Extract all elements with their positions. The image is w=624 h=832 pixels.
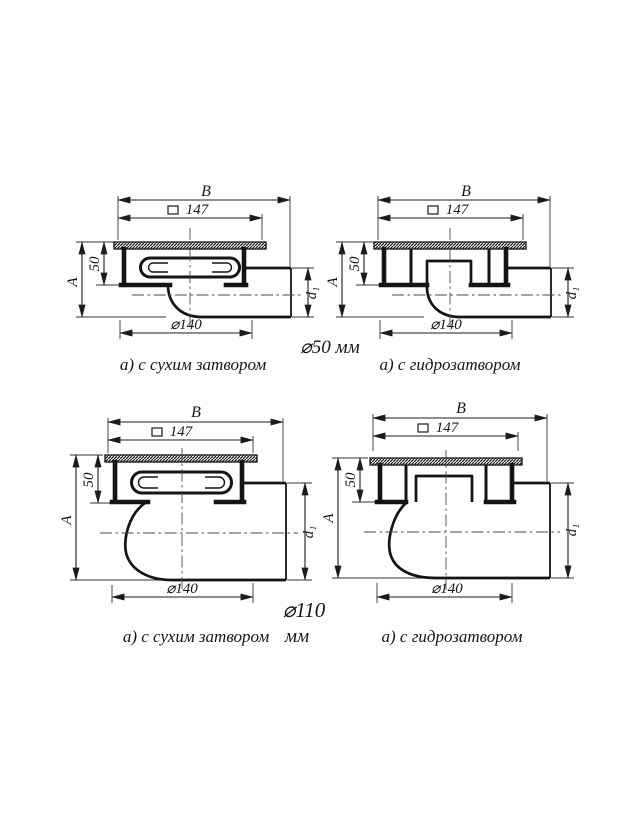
dim-label-overall-height: A [65, 277, 81, 288]
figure-bottom-right-water-seal-110: B 147 A 50 d₁ ⌀140 а) с гидрозатвором [321, 400, 580, 646]
square-section-icon [418, 424, 428, 432]
figure-bottom-left-dry-trap-110: B 147 A 50 d₁ ⌀140 а) с сухим затвором [59, 404, 317, 646]
figure-top-right-water-seal-50: B 147 A 50 d₁ ⌀140 а) с гидрозатвором [325, 183, 580, 374]
label-diameter-50mm: ⌀50 мм [300, 337, 359, 358]
dim-label-square-size: 147 [436, 420, 460, 436]
caption-top-left: а) с сухим затвором [120, 355, 267, 374]
water-seal-weir [427, 261, 471, 287]
figure-top-left-dry-trap-50: B 147 A 50 d₁ ⌀140 а) с сухим затвором [65, 183, 320, 374]
caption-top-right: а) с гидрозатвором [380, 355, 521, 374]
dim-label-square-size: 147 [446, 202, 470, 218]
dry-trap-insert [132, 472, 232, 493]
dim-label-overall-width: B [201, 183, 211, 200]
dim-label-grate-depth: 50 [81, 472, 97, 488]
body-outer-walls [377, 465, 514, 502]
bowl-outline [389, 503, 550, 578]
dim-label-outlet-diameter: d₁ [301, 526, 317, 539]
extension-lines [70, 418, 312, 603]
label-diameter-110-line1: ⌀110 [283, 598, 326, 622]
bowl-outline [427, 287, 551, 317]
dim-label-grate-depth: 50 [87, 256, 103, 272]
dim-label-overall-width: B [461, 183, 471, 200]
dim-label-bowl-diameter: ⌀140 [170, 317, 202, 333]
bowl-outline [168, 285, 291, 317]
dry-trap-insert-inner [139, 477, 225, 488]
dim-label-bowl-diameter: ⌀140 [430, 317, 462, 333]
caption-bottom-right: а) с гидрозатвором [382, 627, 523, 646]
dim-label-grate-depth: 50 [343, 472, 359, 488]
caption-bottom-left: а) с сухим затвором [123, 627, 270, 646]
centerlines [100, 448, 298, 590]
water-seal-weir [416, 476, 472, 502]
square-section-icon [428, 206, 438, 214]
square-section-icon [152, 428, 162, 436]
bowl-outline [125, 503, 286, 580]
grate [105, 455, 257, 462]
square-section-icon [168, 206, 178, 214]
dim-label-square-size: 147 [170, 424, 194, 440]
dim-label-outlet-diameter: d₁ [564, 524, 580, 537]
technical-drawing-canvas: B 147 A 50 d₁ ⌀140 а) с сухим затвором B… [0, 0, 624, 832]
dim-label-overall-height: A [325, 277, 341, 288]
dim-label-overall-height: A [59, 515, 75, 526]
dim-label-bowl-diameter: ⌀140 [431, 581, 463, 597]
label-diameter-110-line2: мм [284, 626, 309, 647]
dim-label-square-size: 147 [186, 202, 210, 218]
extension-lines [332, 414, 574, 603]
dim-label-overall-width: B [456, 400, 466, 417]
dim-label-overall-height: A [321, 513, 337, 524]
dim-label-outlet-diameter: d₁ [304, 287, 320, 300]
dim-label-outlet-diameter: d₁ [564, 287, 580, 300]
dim-label-overall-width: B [191, 404, 201, 421]
dim-label-grate-depth: 50 [347, 256, 363, 272]
